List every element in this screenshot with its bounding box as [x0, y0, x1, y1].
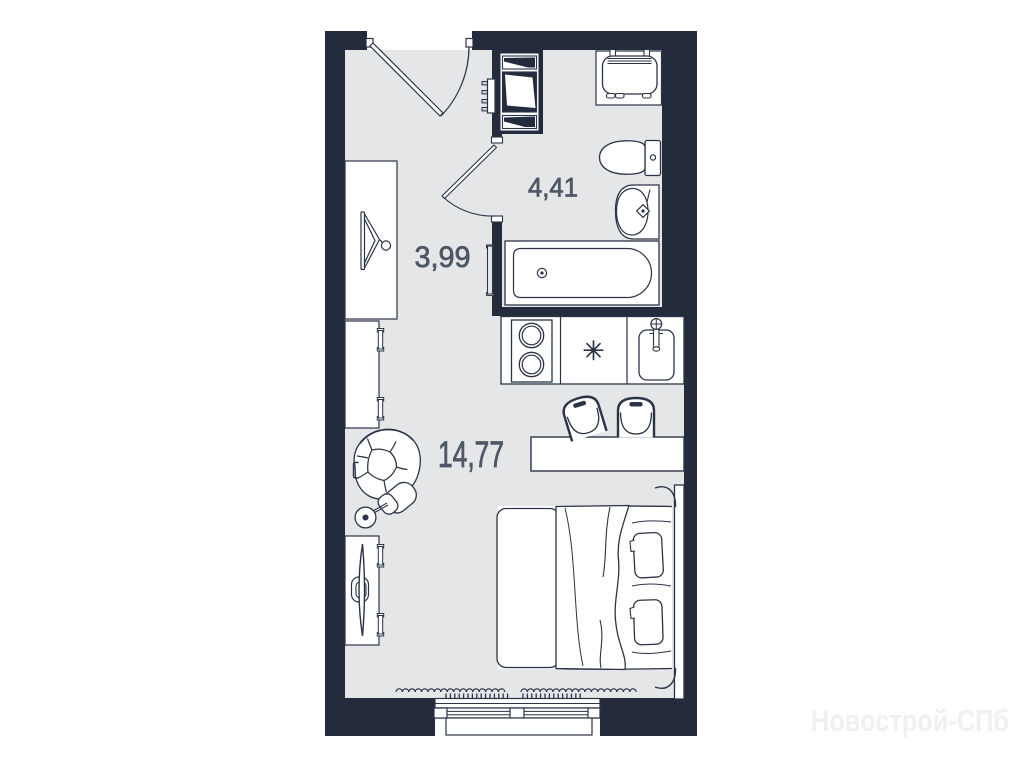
svg-text:3,99: 3,99: [415, 241, 471, 274]
svg-text:14,77: 14,77: [438, 434, 504, 475]
svg-text:4,41: 4,41: [528, 173, 578, 203]
svg-text:Новострой-СПб: Новострой-СПб: [811, 703, 1009, 738]
